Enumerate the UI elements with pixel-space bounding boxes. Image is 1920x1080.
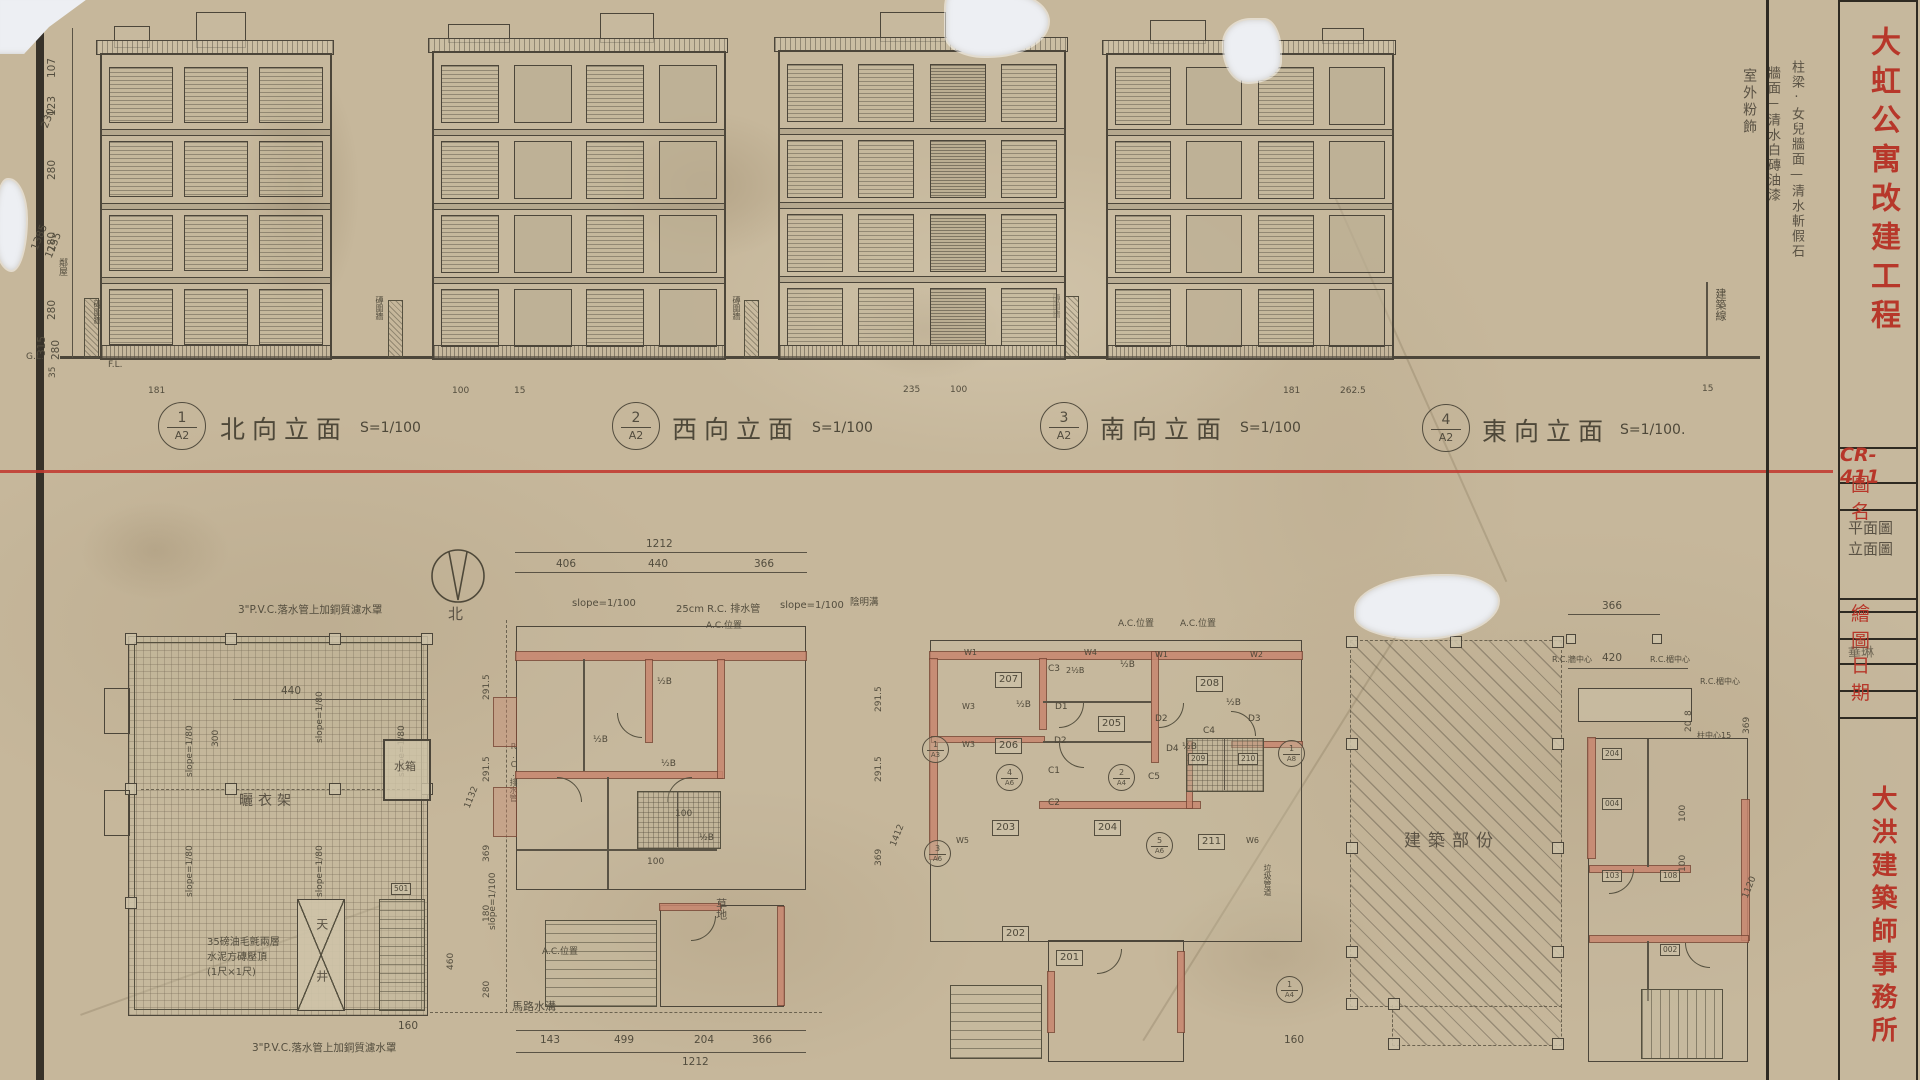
bathroom-divider — [677, 791, 678, 847]
window — [858, 214, 914, 272]
project-title-cell: 大虹公寓改建工程 — [1840, 2, 1916, 449]
water-tank: 水箱 — [383, 739, 431, 801]
wall-tag: ½B — [1120, 660, 1135, 670]
slope-note: slope=1/100 — [780, 600, 844, 611]
marker-divider — [167, 427, 197, 428]
membrane-note-line3: (1尺×1尺) — [207, 967, 256, 978]
paper-stain — [80, 500, 230, 600]
wall — [1177, 951, 1185, 1033]
section-marker: 1A4 — [1276, 976, 1303, 1003]
door-arc — [1059, 743, 1084, 768]
window — [1329, 215, 1385, 273]
balcony-wall — [493, 787, 517, 837]
wall — [1039, 658, 1047, 730]
floor-slab — [1108, 203, 1392, 210]
window — [1115, 141, 1171, 199]
dimension-line — [1568, 614, 1660, 615]
ground-level-label: G.L. — [26, 352, 44, 362]
fence-wall — [1064, 296, 1079, 358]
dimension: 280 — [46, 160, 58, 180]
wall — [931, 736, 1045, 743]
wall — [1039, 801, 1201, 809]
membrane-note-line2: 水泥方磚壓頂 — [207, 952, 267, 963]
dimension: 1412 — [889, 823, 907, 848]
facade — [432, 51, 726, 360]
window — [787, 64, 843, 122]
window — [659, 289, 717, 347]
floor-level-label: F.L. — [108, 360, 122, 370]
elevation-marker: 1A2 — [158, 402, 206, 450]
floor-windows — [787, 214, 1057, 272]
marker-number: 3 — [935, 845, 940, 853]
window — [1115, 67, 1171, 125]
firm-cell: 大洪建築師事務所 — [1840, 719, 1916, 1080]
column-marker — [329, 633, 341, 645]
canopy-beam — [1578, 688, 1692, 722]
window — [1115, 289, 1171, 347]
column-marker — [421, 633, 433, 645]
floor-windows — [109, 215, 323, 271]
plan-b-body: ½B ½B ½B ½B 100 100 — [516, 626, 806, 890]
ac-note: A.C.位置 — [542, 944, 578, 957]
room-tag: 501 — [391, 883, 411, 895]
ac-note: A.C.位置 — [1180, 616, 1216, 629]
floor-windows — [1115, 141, 1385, 199]
window — [109, 215, 173, 271]
window — [1115, 215, 1171, 273]
dimension-line — [233, 699, 425, 700]
marker-sheet: A2 — [629, 430, 644, 441]
partition — [517, 849, 717, 851]
drafter-field-cell: 繪圖 — [1840, 613, 1916, 640]
plinth — [434, 345, 724, 358]
dimension: 1132 — [463, 785, 481, 810]
wall-tag: ½B — [657, 677, 672, 687]
window — [930, 64, 986, 122]
dimension: 291.5 — [482, 674, 492, 700]
window — [659, 141, 717, 199]
dimension: 20 — [1684, 721, 1694, 732]
window — [586, 141, 644, 199]
room-tag: 210 — [1238, 753, 1258, 765]
elevation-title: 北向立面 — [220, 410, 348, 446]
dimension: 280 — [482, 981, 492, 998]
paper-tear — [1356, 576, 1498, 638]
closet-tag: C1 — [1048, 766, 1060, 776]
wall — [1587, 737, 1596, 859]
marker-number: 1 — [178, 411, 187, 425]
balcony-wall — [493, 697, 517, 747]
dimension: 15 — [1702, 384, 1713, 394]
grass-label: 草地 — [714, 898, 727, 920]
dimension: 460 — [446, 953, 456, 970]
room-tag: 202 — [1002, 926, 1029, 942]
red-separator-line — [0, 470, 1833, 473]
column-marker — [1552, 1038, 1564, 1050]
window-tag: W3 — [962, 702, 975, 711]
dimension: 280 — [46, 300, 58, 320]
wall-tag: ½B — [1226, 698, 1241, 708]
window — [441, 141, 499, 199]
marker-number: 1 — [933, 741, 938, 749]
room-tag: 204 — [1094, 820, 1121, 836]
marker-sheet: A6 — [933, 856, 942, 863]
column-marker — [1552, 636, 1564, 648]
building-line-mark — [1706, 282, 1708, 356]
room-tag: 207 — [995, 672, 1022, 688]
window — [259, 215, 323, 271]
window — [259, 289, 323, 345]
room-tag: 204 — [1602, 748, 1622, 760]
elevation-title: 東向立面 — [1482, 412, 1610, 448]
window — [930, 288, 986, 346]
drawing-name-field-cell: 圖名 — [1840, 484, 1916, 511]
room-tag: 205 — [1098, 716, 1125, 732]
wall-tag: 2½B — [1066, 666, 1084, 675]
wall — [645, 659, 653, 743]
column-marker — [1552, 946, 1564, 958]
drawing-sheet: 107 123 230 280 280 280 1385 1155 315 28… — [0, 0, 1920, 1080]
window — [1001, 288, 1057, 346]
building-line-label: 建築線 — [1712, 288, 1728, 321]
hatched-region — [1350, 640, 1562, 1007]
closet-tag: C4 — [1203, 726, 1215, 736]
north-label: 北 — [448, 606, 463, 623]
slope-label: slope=1/80 — [315, 845, 325, 897]
elevation-title: 西向立面 — [672, 410, 800, 446]
floor-windows — [109, 67, 323, 123]
gutter-note: 陰明溝 — [850, 594, 879, 608]
floor-slab — [780, 202, 1064, 209]
wall-tag: ½B — [1182, 742, 1197, 752]
slope-label: slope=1/80 — [185, 845, 195, 897]
marker-divider — [1049, 427, 1079, 428]
marker-divider — [621, 427, 651, 428]
elevation-marker: 4A2 — [1422, 404, 1470, 452]
marker-divider — [1431, 429, 1461, 430]
dimension: 369 — [1742, 717, 1752, 734]
door-arc — [617, 713, 642, 738]
window — [1186, 289, 1242, 347]
date-cell — [1840, 692, 1916, 719]
window-tag: W6 — [1246, 836, 1259, 845]
window — [259, 67, 323, 123]
stair — [545, 920, 657, 1007]
stair — [1641, 989, 1723, 1059]
window — [184, 215, 248, 271]
window — [184, 289, 248, 345]
ridge-line — [141, 789, 415, 790]
slope-label: slope=1/80 — [315, 691, 325, 743]
floor-windows — [1115, 289, 1385, 347]
window — [441, 215, 499, 273]
wall — [1589, 935, 1749, 943]
partition — [607, 777, 609, 889]
entry-porch — [1048, 940, 1184, 1062]
marker-sheet: A2 — [1439, 432, 1454, 443]
dimension: 160 — [398, 1020, 418, 1032]
marker-number: 5 — [1157, 837, 1162, 845]
dimension: 181 — [1283, 386, 1300, 396]
window — [1258, 289, 1314, 347]
window — [930, 140, 986, 198]
partition — [583, 659, 585, 771]
wall-tag: ½B — [593, 735, 608, 745]
plan-e-body — [1588, 738, 1748, 1062]
north-arrow-icon — [430, 548, 486, 604]
dimension: 499 — [614, 1034, 634, 1046]
section-marker: 2A4 — [1108, 764, 1135, 791]
window — [184, 141, 248, 197]
room-tag: 211 — [1198, 834, 1225, 850]
door-tag: D2 — [1054, 736, 1067, 746]
floor-slab — [780, 128, 1064, 135]
column-marker — [125, 633, 137, 645]
window-tag: W3 — [962, 740, 975, 749]
stairwell — [379, 899, 425, 1011]
section-marker: 1A8 — [1278, 740, 1305, 767]
dimension: 181 — [148, 386, 165, 396]
floor-slab — [780, 276, 1064, 283]
window — [1258, 215, 1314, 273]
facade — [1106, 53, 1394, 360]
marker-sheet: A4 — [1117, 780, 1126, 787]
column-marker — [1566, 634, 1576, 644]
window — [586, 289, 644, 347]
drying-rack-label: 曬衣架 — [239, 793, 296, 809]
window — [787, 214, 843, 272]
column-marker — [125, 897, 137, 909]
window-tag: W5 — [956, 836, 969, 845]
road-label: 馬路水溝 — [512, 998, 556, 1014]
door-tag: D3 — [1248, 714, 1261, 724]
membrane-note: 35磅油毛氈兩層 水泥方磚壓頂 (1尺×1尺) — [207, 933, 317, 978]
dimension: 366 — [752, 1034, 772, 1046]
elevation-scale: S=1/100 — [1240, 420, 1301, 436]
marker-number: 2 — [632, 411, 641, 425]
drawing-name-cell: 平面圖 立面圖 — [1840, 511, 1916, 600]
elevation-scale: S=1/100 — [360, 420, 421, 436]
entry-porch — [660, 905, 784, 1007]
window — [1186, 141, 1242, 199]
plinth — [1108, 345, 1392, 358]
window — [514, 141, 572, 199]
wall-tag: ½B — [1016, 700, 1031, 710]
plan-c-body — [930, 640, 1302, 942]
water-tank-label: 水箱 — [394, 761, 416, 774]
rc-lintel-note: R.C.楣中心 — [1650, 654, 1690, 665]
sheet-edge — [36, 0, 44, 1080]
stair — [950, 985, 1042, 1059]
dimension: 366 — [1602, 600, 1622, 612]
column-marker — [1388, 1038, 1400, 1050]
floor-slab — [434, 277, 724, 284]
column-marker — [1652, 634, 1662, 644]
dimension: 143 — [540, 1034, 560, 1046]
facade — [778, 50, 1066, 360]
ac-note: A.C.位置 — [1118, 616, 1154, 629]
dimension: 35 — [48, 367, 58, 378]
door-arc — [1097, 949, 1122, 974]
dimension: 235 — [903, 385, 920, 395]
window — [659, 215, 717, 273]
drawing-name-line2: 立面圖 — [1848, 538, 1908, 559]
marker-number: 1 — [1289, 745, 1294, 753]
column-marker — [1552, 842, 1564, 854]
marker-sheet: A2 — [1057, 430, 1072, 441]
paper-tear — [0, 0, 94, 54]
dimension-line — [515, 572, 807, 573]
floor-windows — [441, 65, 717, 123]
window — [1329, 67, 1385, 125]
dimension: 440 — [648, 558, 668, 570]
dimension: 100 — [950, 385, 967, 395]
dimension: 160 — [1284, 1034, 1304, 1046]
marker-sheet: A6 — [1005, 780, 1014, 787]
bathroom-divider — [1224, 738, 1225, 790]
marker-sheet: A8 — [1287, 756, 1296, 763]
marker-sheet: A6 — [1155, 848, 1164, 855]
floor-windows — [441, 289, 717, 347]
window — [1001, 140, 1057, 198]
elevation-scale: S=1/100 — [812, 420, 873, 436]
column-marker — [1346, 998, 1358, 1010]
section-marker: 4A6 — [996, 764, 1023, 791]
door-arc — [691, 916, 716, 941]
dimension: 262.5 — [1340, 386, 1366, 396]
marker-number: 4 — [1442, 413, 1451, 427]
column-marker — [1346, 946, 1358, 958]
window — [930, 214, 986, 272]
dimension: 100 — [647, 857, 664, 867]
floor-windows — [787, 140, 1057, 198]
rc-wall-note: R.C.牆中心 — [1552, 654, 1592, 665]
floor-slab — [434, 129, 724, 136]
wall — [1047, 971, 1055, 1033]
wall — [1151, 651, 1159, 763]
dimension: 440 — [281, 685, 301, 697]
dimension: 15 — [514, 386, 525, 396]
slope-label: slope=1/80 — [185, 725, 195, 777]
floor-windows — [109, 141, 323, 197]
dimension-line — [516, 1052, 806, 1053]
section-marker: 5A6 — [1146, 832, 1173, 859]
door-arc — [1685, 943, 1710, 968]
floor-windows — [787, 64, 1057, 122]
window — [858, 140, 914, 198]
dimension: 100 — [1678, 805, 1688, 822]
neighbor-label: 鄰屋 — [56, 258, 69, 276]
floor-windows — [441, 141, 717, 199]
wall — [1741, 799, 1750, 941]
dimension: 180 — [482, 905, 492, 922]
section-marker: 1A3 — [922, 736, 949, 763]
fence-wall — [744, 300, 759, 358]
membrane-note-line1: 35磅油毛氈兩層 — [207, 937, 280, 948]
column-marker — [225, 783, 237, 795]
dimension: 369 — [874, 849, 884, 866]
trash-chute-note: 垃圾管道 — [1262, 864, 1273, 896]
wall — [717, 659, 725, 779]
wall — [777, 906, 785, 1006]
window — [858, 288, 914, 346]
window — [586, 215, 644, 273]
window — [1329, 289, 1385, 347]
slope-note: slope=1/100 — [572, 598, 636, 609]
floor-slab — [102, 203, 330, 210]
floor-windows — [109, 289, 323, 345]
window — [514, 65, 572, 123]
wall-tag: ½B — [661, 759, 676, 769]
window — [184, 67, 248, 123]
closet-tag: C2 — [1048, 798, 1060, 808]
window — [1186, 215, 1242, 273]
wall-tag: ½B — [699, 833, 714, 843]
window — [109, 141, 173, 197]
dimension: 366 — [754, 558, 774, 570]
window — [1258, 141, 1314, 199]
dimension: 291.5 — [874, 686, 884, 712]
marker-number: 4 — [1007, 769, 1012, 777]
column-marker — [1346, 842, 1358, 854]
project-title: 大虹公寓改建工程 — [1860, 26, 1904, 338]
floor-windows — [441, 215, 717, 273]
door-tag: D1 — [1055, 702, 1068, 712]
window-tag: W4 — [1084, 648, 1097, 657]
dimension-line — [1568, 668, 1688, 669]
wall — [515, 651, 807, 661]
drawing-name-line1: 平面圖 — [1848, 517, 1908, 538]
fence-label: 磚圍牆 — [374, 296, 385, 320]
pvc-note-top: 3"P.V.C.落水管上加銅質濾水罩 — [238, 602, 382, 617]
dimension: 1212 — [682, 1056, 709, 1068]
pvc-note-bottom: 3"P.V.C.落水管上加銅質濾水罩 — [252, 1040, 396, 1055]
dimension: 291.5 — [482, 756, 492, 782]
window — [514, 289, 572, 347]
window — [259, 141, 323, 197]
window-tag: W2 — [1250, 650, 1263, 659]
room-tag: 002 — [1660, 944, 1680, 956]
dimension: 291.5 — [874, 756, 884, 782]
roof-ledge — [104, 688, 130, 734]
floor-slab — [102, 129, 330, 136]
existing-building-label: 建築部份 — [1404, 832, 1500, 852]
window — [787, 288, 843, 346]
window — [787, 140, 843, 198]
elevation-title: 南向立面 — [1100, 410, 1228, 446]
dimension: 300 — [211, 730, 221, 747]
closet-tag: C3 — [1048, 664, 1060, 674]
room-tag: 209 — [1188, 753, 1208, 765]
dimension: 8 — [1684, 710, 1694, 716]
column-marker — [1388, 998, 1400, 1010]
window — [441, 289, 499, 347]
marker-sheet: A2 — [175, 430, 190, 441]
finish-note-3: 室外粉飾 — [1741, 68, 1757, 136]
elevation-scale: S=1/100. — [1620, 422, 1685, 438]
dimension-line — [516, 1030, 806, 1031]
door-arc — [557, 777, 582, 802]
window — [1329, 141, 1385, 199]
rc-lintel-note: R.C.楣中心 — [1700, 676, 1740, 687]
title-block: 大虹公寓改建工程 CR-411 圖名 平面圖 立面圖 繪圖 華琳 日期 大洪建築… — [1838, 0, 1918, 1080]
dimension: 369 — [482, 845, 492, 862]
window — [109, 67, 173, 123]
border-rule — [1766, 0, 1769, 1080]
window — [109, 289, 173, 345]
dimension-line — [515, 552, 807, 553]
fence-label: 磚圍牆 — [731, 296, 742, 320]
